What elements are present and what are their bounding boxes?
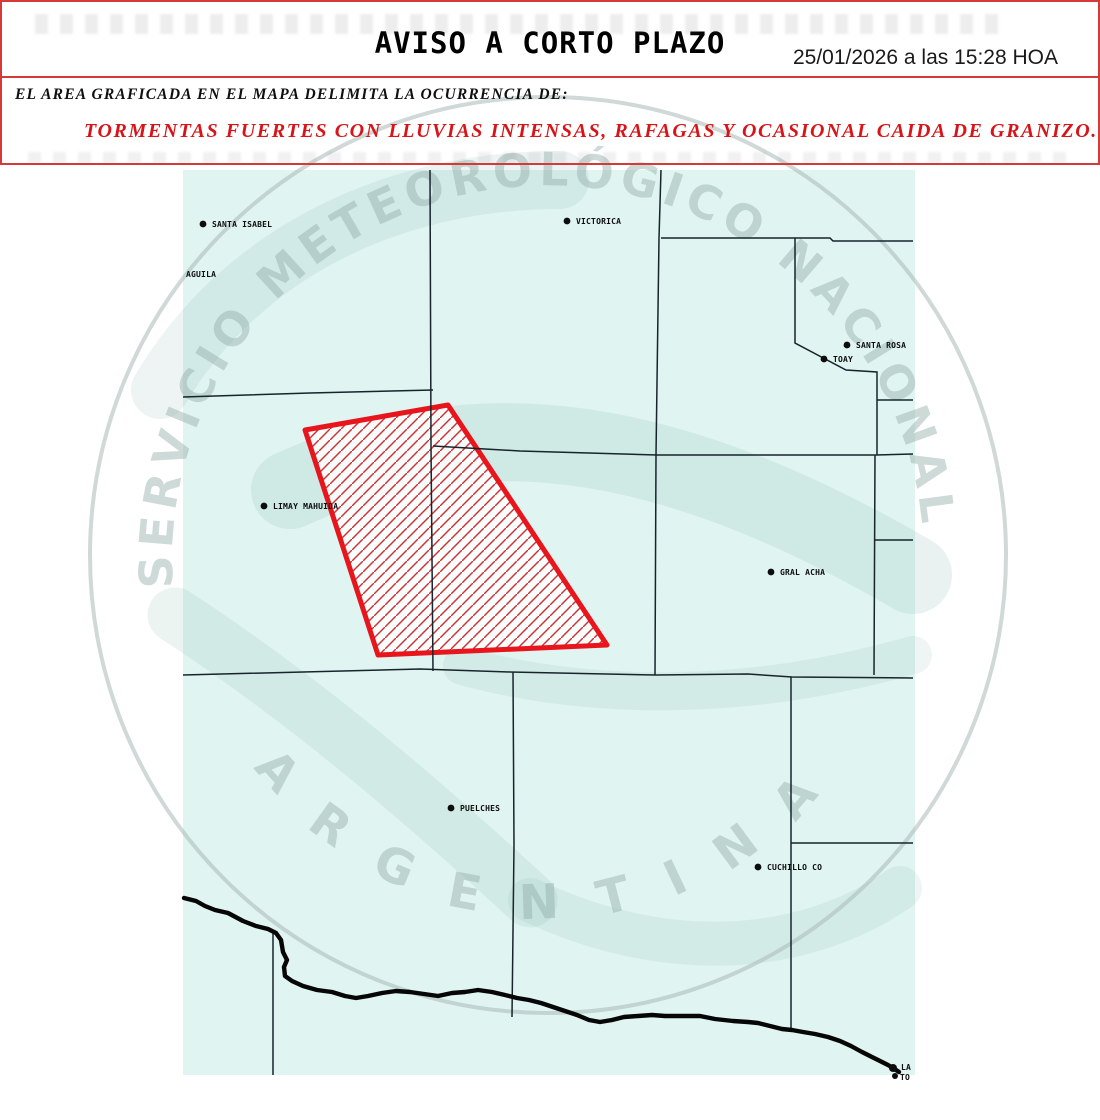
city-to-edge: TO xyxy=(892,1073,910,1082)
city-dot xyxy=(261,503,268,510)
city-label: TOAY xyxy=(833,355,853,364)
title-box: AVISO A CORTO PLAZO 25/01/2026 a las 15:… xyxy=(0,0,1100,78)
warning-map: SERVICIO METEOROLÓGICO NACIONAL ARGENTIN… xyxy=(0,0,1100,1120)
city-dot xyxy=(200,221,207,228)
city-limay-mahuida: LIMAY MAHUIDA xyxy=(261,502,339,511)
city-label: VICTORICA xyxy=(576,217,621,226)
city-label: TO xyxy=(900,1073,910,1082)
notice-intro-text: EL AREA GRAFICADA EN EL MAPA DELIMITA LA… xyxy=(15,86,569,104)
city-dot xyxy=(889,1064,897,1072)
city-dot xyxy=(768,569,775,576)
city-dot xyxy=(564,218,571,225)
city-dot xyxy=(844,342,851,349)
city-label: AGUILA xyxy=(186,270,216,279)
city-label: LIMAY MAHUIDA xyxy=(273,502,338,511)
city-dot xyxy=(892,1073,898,1079)
weather-warning-page: SERVICIO METEOROLÓGICO NACIONAL ARGENTIN… xyxy=(0,0,1100,1120)
notice-box: EL AREA GRAFICADA EN EL MAPA DELIMITA LA… xyxy=(0,76,1100,165)
issue-timestamp: 25/01/2026 a las 15:28 HOA xyxy=(793,46,1058,70)
city-label: CUCHILLO CO xyxy=(767,863,822,872)
city-label: SANTA ISABEL xyxy=(212,220,272,229)
city-aguila: AGUILA xyxy=(186,270,216,279)
city-label: PUELCHES xyxy=(460,804,500,813)
city-label: SANTA ROSA xyxy=(856,341,906,350)
city-dot xyxy=(755,864,762,871)
warning-description-text: TORMENTAS FUERTES CON LLUVIAS INTENSAS, … xyxy=(84,120,1098,143)
city-label: LA xyxy=(901,1063,911,1072)
city-la-edge: LA xyxy=(889,1063,911,1072)
city-label: GRAL ACHA xyxy=(780,568,825,577)
city-dot xyxy=(448,805,455,812)
city-dot xyxy=(821,356,828,363)
